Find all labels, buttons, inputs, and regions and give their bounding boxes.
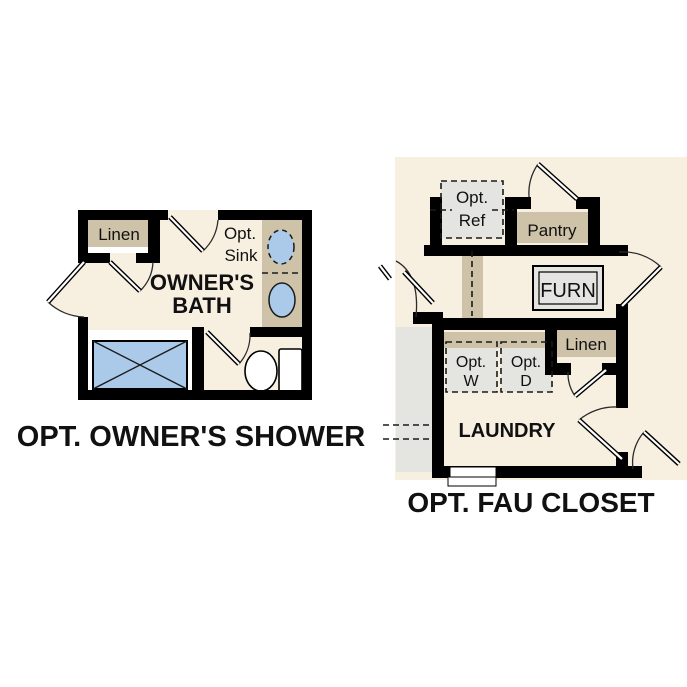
wall-segment (192, 327, 204, 400)
opt-ref-label-line1: Opt. (456, 188, 488, 207)
floor-plan-figure: Opt. Ref Pantry FURN Linen Opt. W Opt. D… (0, 0, 687, 687)
pantry-label: Pantry (527, 221, 577, 240)
opt-sink-label-line2: Sink (224, 246, 258, 265)
owners-bath-label-line2: BATH (172, 293, 231, 318)
linen-label-left: Linen (98, 225, 140, 244)
fau-closet-plan: Opt. Ref Pantry FURN Linen Opt. W Opt. D… (380, 157, 687, 518)
fau-closet-title: OPT. FAU CLOSET (407, 487, 654, 518)
wall-segment (616, 304, 628, 408)
wall-segment (78, 317, 88, 400)
owners-shower-title: OPT. OWNER'S SHOWER (17, 421, 366, 453)
wall-segment (218, 210, 312, 220)
window-opening (448, 477, 496, 486)
furn-label: FURN (540, 280, 596, 302)
owners-shower-plan: Linen Opt. Sink OWNER'S BATH OPT. OWNER'… (17, 210, 366, 453)
laundry-counter (444, 332, 557, 348)
window-opening (450, 467, 496, 477)
wall-segment (302, 210, 312, 400)
wall-segment (576, 197, 600, 209)
linen-label-right: Linen (565, 335, 607, 354)
opt-sink-label-line1: Opt. (224, 224, 256, 243)
opt-d-label-line2: D (520, 373, 532, 390)
owners-bath-label-line1: OWNER'S (150, 270, 254, 295)
laundry-label: LAUNDRY (458, 420, 556, 442)
wall-segment (505, 197, 531, 209)
wall-segment (545, 363, 571, 375)
shower (88, 330, 192, 390)
linen-shelf-edge (88, 247, 148, 253)
optional-sink (268, 230, 294, 264)
wall-segment (432, 318, 444, 478)
edge-door-leaf (380, 266, 390, 279)
wall-segment (136, 253, 160, 263)
wall-segment (432, 318, 628, 330)
toilet-tank (279, 349, 302, 393)
toilet-bowl (245, 351, 277, 391)
wall-segment (424, 245, 628, 256)
wall-segment (413, 312, 443, 324)
side-area (396, 327, 432, 472)
opt-w-label-line2: W (463, 373, 479, 390)
opt-w-label-line1: Opt. (456, 354, 486, 371)
floor-plan-canvas: Opt. Ref Pantry FURN Linen Opt. W Opt. D… (0, 0, 687, 687)
wall-segment (250, 327, 312, 337)
opt-d-label-line1: Opt. (511, 354, 541, 371)
opt-ref-label-line2: Ref (459, 211, 486, 230)
sink (269, 283, 295, 317)
